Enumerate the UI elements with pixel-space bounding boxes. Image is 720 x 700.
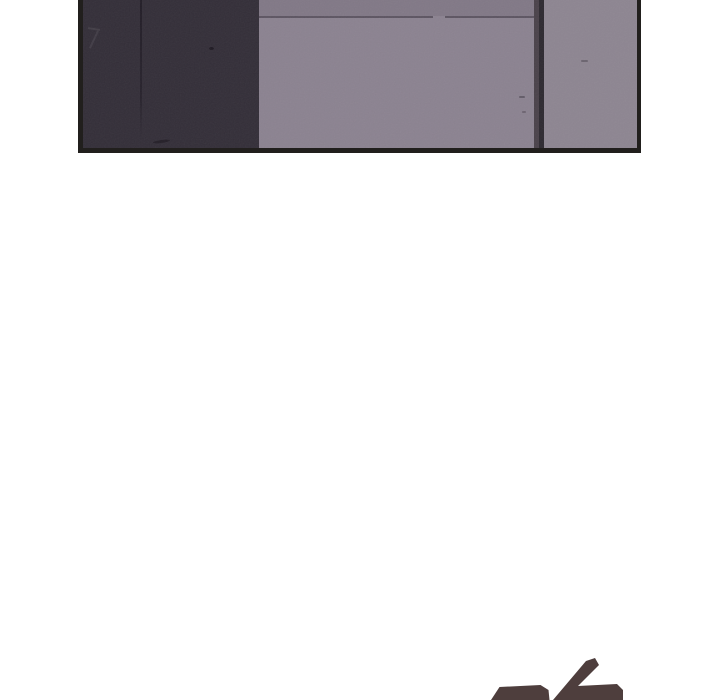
wall-scratch (89, 30, 99, 48)
comic-panel[interactable] (78, 0, 641, 153)
wall-speck (581, 60, 588, 62)
episode-number-fragment (455, 655, 630, 700)
panel-center-wall (259, 0, 534, 148)
ceiling-line-right (445, 16, 534, 18)
wall-speck (153, 139, 170, 144)
panel-left-wall (83, 0, 259, 148)
wall-speck (519, 96, 525, 98)
panel-right-wall (544, 0, 637, 148)
wall-corner-divider (534, 0, 544, 148)
wall-speck (522, 111, 526, 113)
numeral-first-top (491, 685, 550, 700)
wall-seam-vertical (140, 0, 142, 138)
comic-panel-artwork (83, 0, 637, 148)
wall-speck (209, 47, 214, 50)
numeral-second-top (553, 658, 623, 700)
ceiling-shade (259, 0, 534, 16)
wall-scratch (88, 27, 100, 31)
ceiling-line-left (259, 16, 433, 18)
webtoon-viewport (0, 0, 720, 700)
